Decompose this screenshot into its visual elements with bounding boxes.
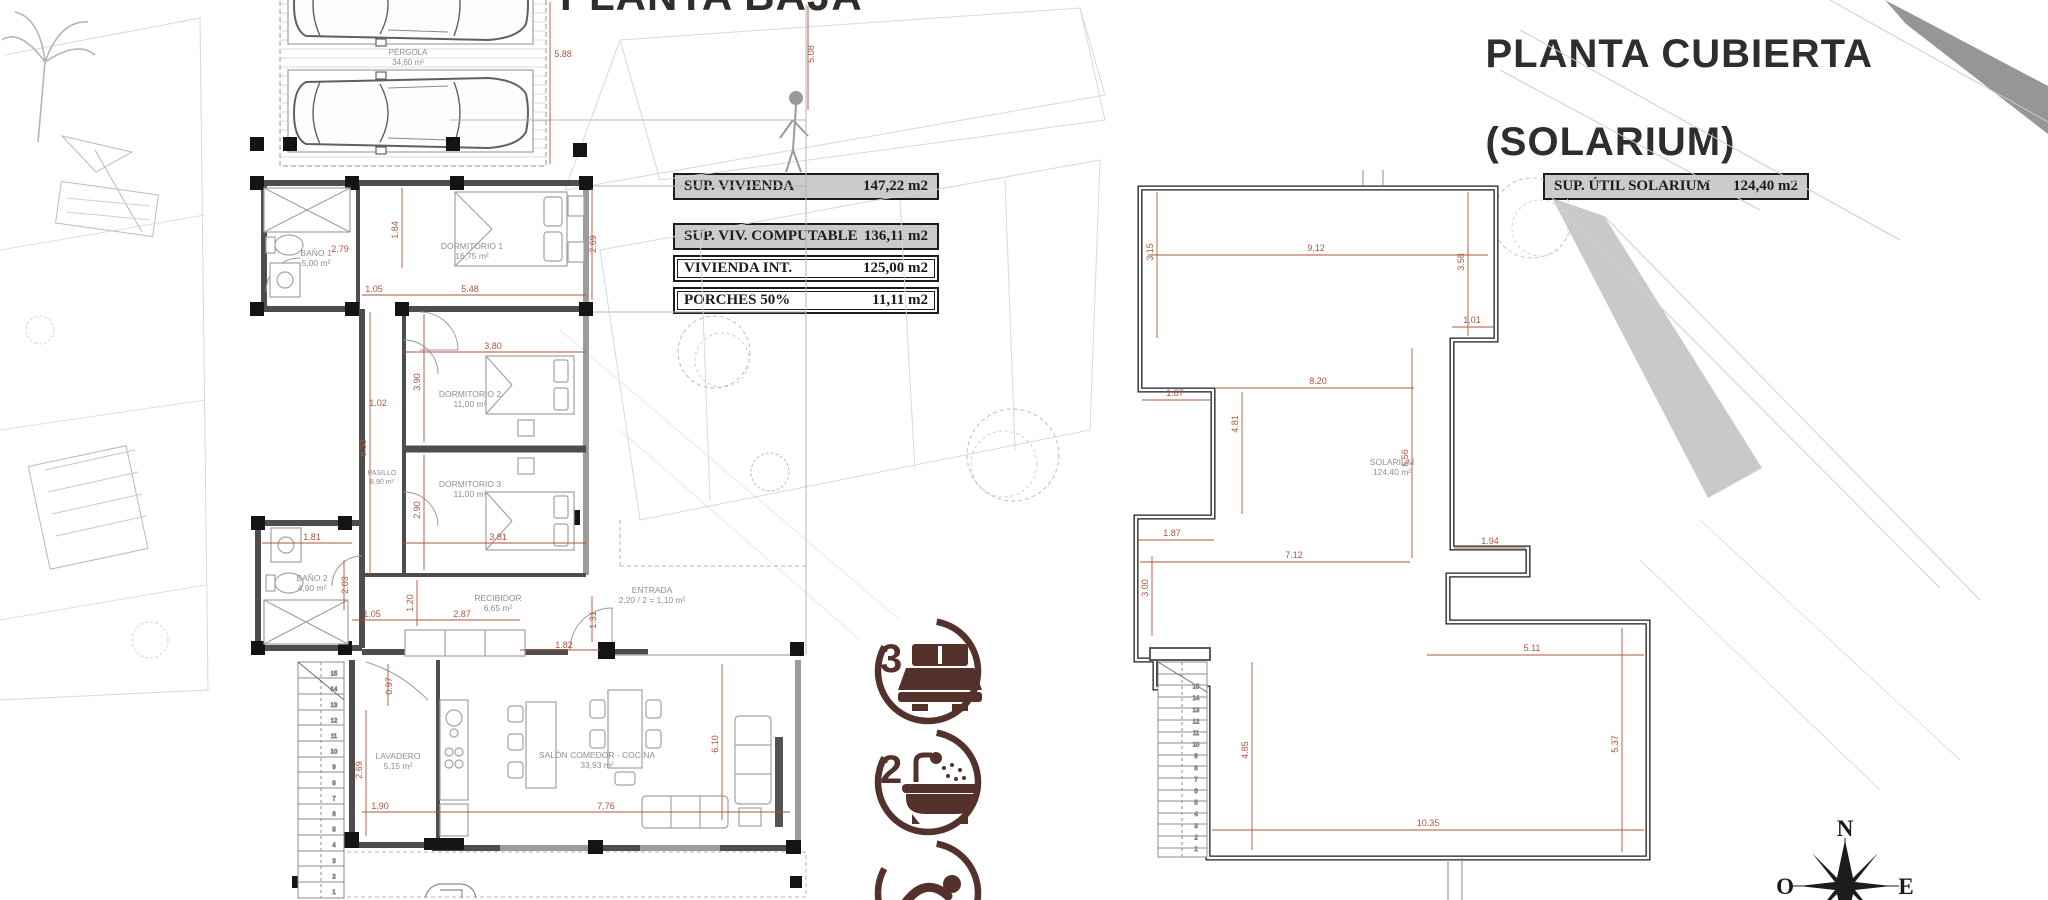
dim-label: 5.88	[554, 49, 572, 59]
dim-label: 1.20	[405, 594, 415, 612]
room-name: ENTRADA	[632, 585, 673, 595]
stair-step-number: 14	[331, 687, 338, 693]
nightstand	[518, 420, 534, 436]
plan-drawing: PÉRGOLA 34,60 m²	[0, 0, 2048, 900]
dim-label: 1.82	[555, 640, 573, 650]
feature-bedrooms: 3	[870, 613, 986, 729]
stair-step-number: 12	[1193, 719, 1200, 725]
room-name: BAÑO 2	[296, 573, 327, 583]
pergola-name: PÉRGOLA	[389, 48, 428, 57]
dim-label: 1.87	[1163, 528, 1181, 538]
stair-step-number: 13	[331, 703, 338, 709]
bedroom-count: 3	[880, 637, 902, 681]
dim-label: 2.79	[331, 244, 349, 254]
dim-label: 8.20	[1309, 376, 1327, 386]
dim-label: 5.37	[1610, 735, 1620, 753]
dim-label: 3.15	[1145, 243, 1155, 261]
right-staircase: 123456789101112131415	[1150, 648, 1210, 857]
dim-label: 7.76	[597, 801, 615, 811]
pergola-area: 34,60 m²	[392, 58, 424, 67]
compass-o: O	[1776, 874, 1794, 899]
background-sketch-center-house	[560, 8, 1105, 640]
room-area: 16,75 m²	[455, 251, 489, 261]
dim-label: 5.48	[461, 284, 479, 294]
room-area: 6,65 m²	[484, 603, 513, 613]
dim-label: 2.87	[453, 609, 471, 619]
dim-label: 2.03	[340, 576, 350, 594]
dim-label: 1.94	[1481, 536, 1499, 546]
dim-label: 0.97	[384, 677, 394, 695]
dim-label: 1.31	[588, 611, 598, 629]
room-name: DORMITORIO 3	[439, 479, 501, 489]
room-name: LAVADERO	[375, 751, 420, 761]
background-sketch-left-garden	[0, 12, 208, 700]
compass-e: E	[1898, 874, 1913, 899]
dim-label: 1.02	[369, 398, 387, 408]
dim-label: 2.90	[412, 501, 422, 519]
room-name: SALÓN COMEDOR - COCINA	[539, 750, 656, 760]
room-name: PASILLO	[368, 470, 397, 477]
feature-bathrooms: 2	[870, 724, 986, 840]
stair-step-number: 15	[1193, 685, 1200, 691]
dim-label: 1.84	[390, 221, 400, 239]
pergola: PÉRGOLA 34,60 m²	[280, 0, 546, 166]
dim-label: 3.58	[1456, 253, 1466, 271]
compass-rose: N O E	[1776, 816, 1914, 900]
compass-n: N	[1837, 816, 1854, 841]
room-name: BAÑO 1	[300, 248, 331, 258]
room-name: DORMITORIO 2	[439, 389, 501, 399]
room-name: DORMITORIO 1	[441, 241, 503, 251]
dim-label: 4.85	[1240, 741, 1250, 759]
room-area: 5,00 m²	[302, 258, 331, 268]
dim-label: 3.00	[1140, 579, 1150, 597]
sideboard	[405, 630, 525, 656]
nightstand	[518, 458, 534, 474]
bathroom-1-fixtures	[264, 188, 350, 297]
dim-label: 3.80	[484, 341, 502, 351]
room-area: 33,93 m²	[580, 760, 614, 770]
dim-label: 8.33	[358, 439, 368, 457]
dim-label: 6.10	[710, 735, 720, 753]
bed-icon	[898, 644, 982, 711]
room-name: SOLARIUM	[1370, 457, 1414, 467]
cut-off-car-outline	[425, 884, 476, 898]
dim-label: 1.87	[1166, 388, 1184, 398]
bed-dormitorio-2	[486, 356, 574, 414]
stair-step-number: 13	[1193, 708, 1200, 714]
dim-label: 1.90	[371, 801, 389, 811]
dim-label: 1.81	[303, 532, 321, 542]
room-area: 124,40 m²	[1373, 467, 1411, 477]
roof-band-sketch	[1885, 0, 2048, 134]
dim-label: 5.08	[806, 45, 816, 63]
compass-star	[1799, 840, 1891, 900]
bathroom-count: 2	[880, 748, 902, 792]
stair-step-number: 15	[331, 672, 338, 678]
room-area: 11,00 m²	[454, 489, 487, 499]
dim-label: 3.90	[412, 373, 422, 391]
room-area: 11,00 m²	[454, 399, 487, 409]
pool-swimmer-icon	[906, 875, 961, 900]
dim-label: 10.35	[1417, 818, 1440, 828]
dim-label: 2.69	[354, 761, 364, 779]
kitchen	[440, 700, 468, 836]
room-name: RECIBIDOR	[474, 593, 521, 603]
room-area: 8,90 m²	[370, 479, 394, 486]
dim-label: 4.81	[1230, 415, 1240, 433]
stair-step-number: 11	[1193, 731, 1200, 737]
dim-label: 7.12	[1285, 550, 1303, 560]
dim-label: 2.69	[588, 235, 598, 253]
dim-label: 1.01	[1463, 315, 1481, 325]
stair-step-number: 11	[331, 734, 338, 740]
room-area: 2,20 / 2 = 1,10 m²	[619, 595, 686, 605]
stair-step-number: 10	[331, 750, 338, 756]
room-area: 4,90 m²	[298, 583, 327, 593]
feature-pool	[870, 835, 986, 900]
dim-label: 3.81	[489, 532, 507, 542]
dim-label: 9.12	[1307, 243, 1325, 253]
floor-plan-sheet: PLANTA BAJA PLANTA CUBIERTA (SOLARIUM) S…	[0, 0, 2048, 900]
stair-step-number: 14	[1193, 696, 1200, 702]
stair-step-number: 10	[1193, 743, 1200, 749]
stair-step-number: 12	[331, 718, 338, 724]
solarium-plan: 123456789101112131415	[1136, 170, 1648, 900]
kitchen-island	[508, 702, 556, 788]
dim-label: 1.05	[363, 609, 381, 619]
solarium-outline	[1136, 188, 1648, 858]
left-staircase: 123456789101112131415	[298, 662, 344, 898]
dining-table	[590, 690, 661, 785]
dim-label: 1.05	[365, 284, 383, 294]
dim-label: 5.11	[1524, 643, 1541, 653]
room-area: 5,15 m²	[384, 761, 413, 771]
